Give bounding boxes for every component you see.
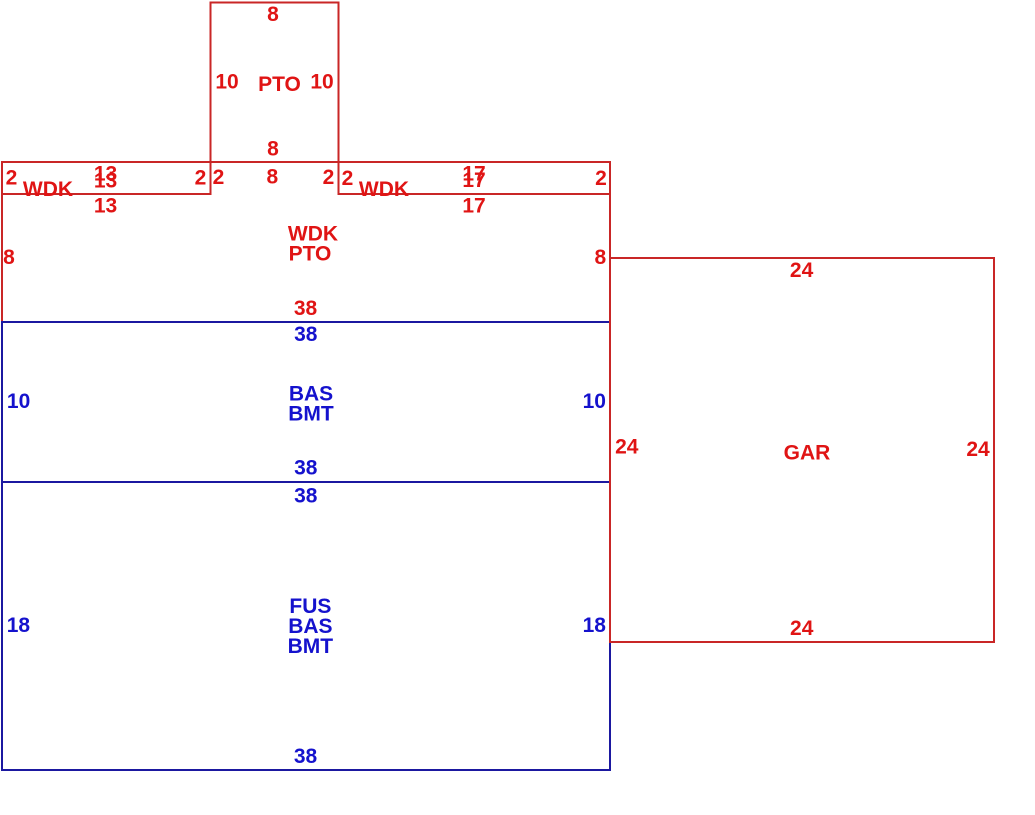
svg-text:8: 8 xyxy=(267,138,279,161)
svg-text:PTO: PTO xyxy=(258,73,301,96)
svg-text:38: 38 xyxy=(294,745,318,768)
svg-text:17: 17 xyxy=(462,169,485,192)
svg-text:8: 8 xyxy=(266,166,278,189)
svg-text:8: 8 xyxy=(267,3,279,26)
svg-text:10: 10 xyxy=(7,390,30,413)
svg-text:13: 13 xyxy=(94,195,117,218)
svg-text:8: 8 xyxy=(595,246,607,269)
svg-text:2: 2 xyxy=(195,167,207,190)
svg-text:BMT: BMT xyxy=(288,403,334,426)
svg-text:PTO: PTO xyxy=(289,243,332,266)
svg-text:24: 24 xyxy=(615,436,639,459)
svg-text:38: 38 xyxy=(294,297,318,320)
svg-text:38: 38 xyxy=(294,323,318,346)
svg-text:2: 2 xyxy=(342,167,354,190)
svg-text:24: 24 xyxy=(790,617,814,640)
svg-text:2: 2 xyxy=(6,167,18,190)
svg-text:10: 10 xyxy=(215,71,238,94)
svg-text:10: 10 xyxy=(583,390,606,413)
svg-text:2: 2 xyxy=(595,167,607,190)
svg-text:GAR: GAR xyxy=(784,442,831,465)
svg-text:BMT: BMT xyxy=(288,635,334,658)
svg-text:WDK: WDK xyxy=(23,178,73,201)
svg-text:2: 2 xyxy=(213,166,225,189)
svg-text:18: 18 xyxy=(7,614,31,637)
svg-text:10: 10 xyxy=(310,71,333,94)
svg-text:WDK: WDK xyxy=(359,178,409,201)
svg-text:8: 8 xyxy=(3,246,15,269)
svg-text:38: 38 xyxy=(294,485,318,508)
svg-text:38: 38 xyxy=(294,457,318,480)
svg-text:24: 24 xyxy=(790,259,814,282)
svg-text:13: 13 xyxy=(94,170,117,193)
svg-text:17: 17 xyxy=(462,195,485,218)
svg-text:2: 2 xyxy=(323,166,335,189)
svg-text:24: 24 xyxy=(966,438,990,461)
svg-text:18: 18 xyxy=(583,614,607,637)
